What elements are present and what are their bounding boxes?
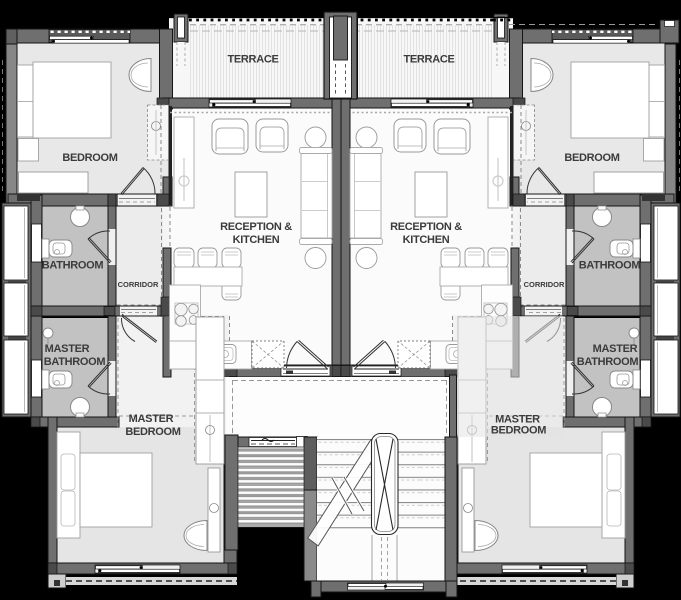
svg-text:BATHROOM: BATHROOM — [579, 260, 641, 272]
svg-text:CORRIDOR: CORRIDOR — [118, 280, 159, 289]
svg-text:BEDROOM: BEDROOM — [62, 152, 117, 164]
svg-text:TERRACE: TERRACE — [227, 54, 278, 66]
svg-text:BEDROOM: BEDROOM — [564, 152, 619, 164]
svg-text:BEDROOM: BEDROOM — [125, 426, 180, 438]
svg-text:CORRIDOR: CORRIDOR — [524, 280, 565, 289]
svg-text:MASTER: MASTER — [129, 413, 174, 425]
svg-text:KITCHEN: KITCHEN — [403, 234, 450, 246]
svg-text:RECEPTION &: RECEPTION & — [220, 221, 292, 233]
svg-text:BEDROOM: BEDROOM — [491, 425, 546, 437]
svg-text:MASTER: MASTER — [593, 343, 638, 355]
svg-text:RECEPTION &: RECEPTION & — [390, 221, 462, 233]
svg-text:BATHROOM: BATHROOM — [44, 356, 106, 368]
svg-text:BATHROOM: BATHROOM — [42, 260, 104, 272]
svg-text:MASTER: MASTER — [45, 343, 90, 355]
svg-text:TERRACE: TERRACE — [403, 54, 454, 66]
svg-text:BATHROOM: BATHROOM — [577, 356, 639, 368]
svg-text:KITCHEN: KITCHEN — [233, 234, 280, 246]
